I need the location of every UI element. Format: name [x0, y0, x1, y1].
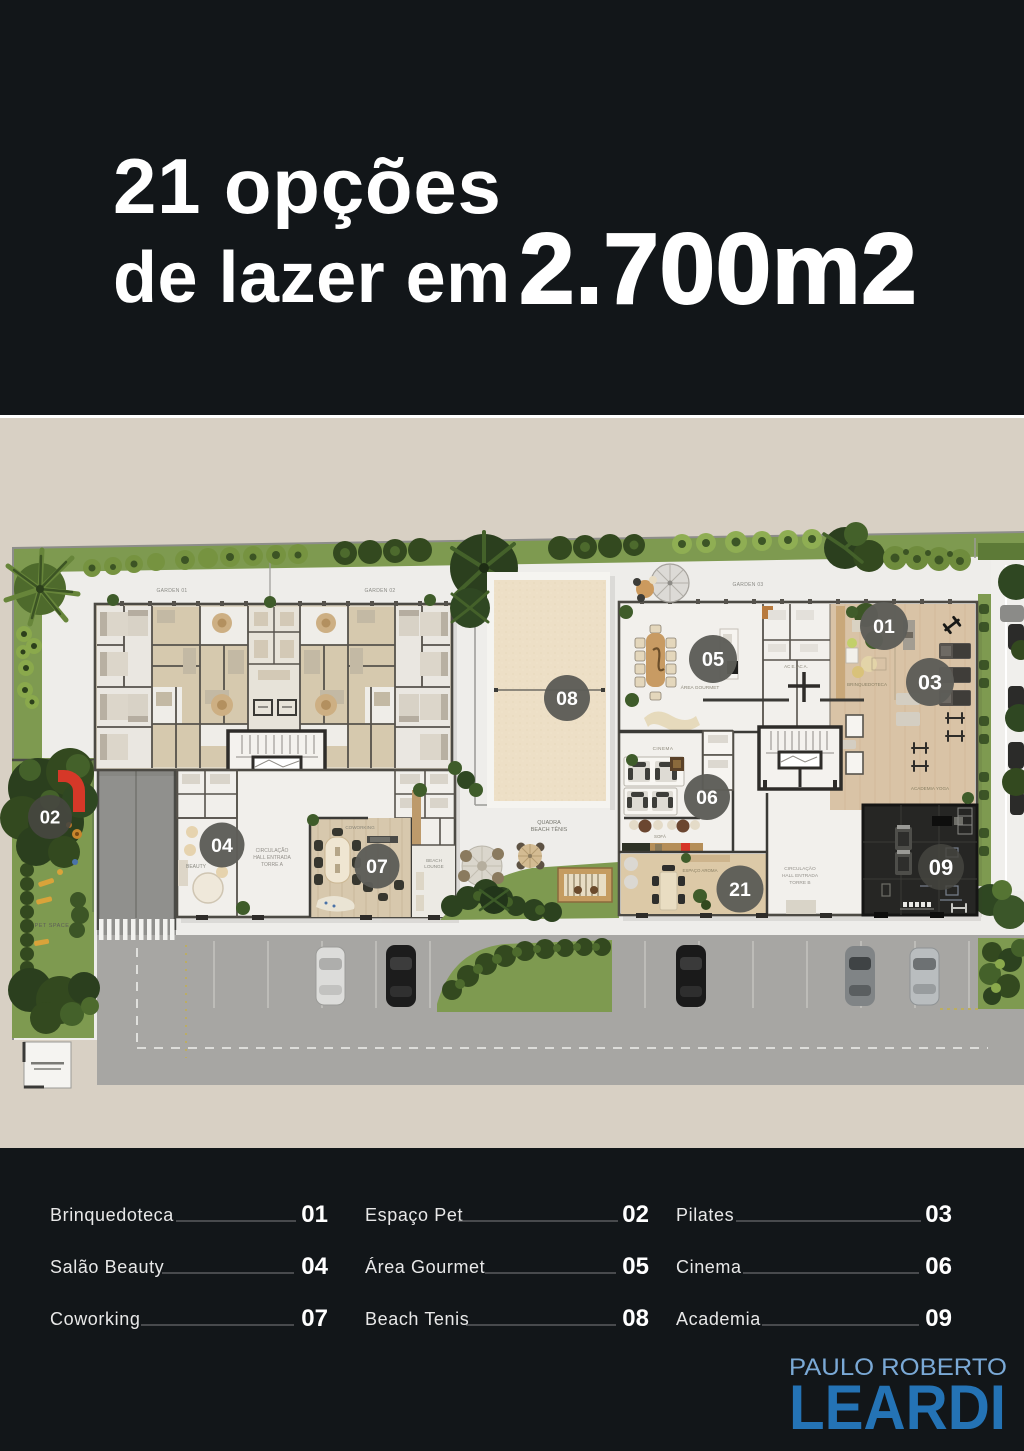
- svg-text:08: 08: [556, 688, 578, 710]
- svg-text:BRINQUEDOTECA: BRINQUEDOTECA: [847, 682, 888, 687]
- svg-text:Cinema: Cinema: [676, 1257, 742, 1277]
- svg-text:Área Gourmet: Área Gourmet: [365, 1257, 485, 1277]
- svg-text:LEARDI: LEARDI: [789, 1373, 1006, 1443]
- svg-text:04: 04: [301, 1253, 328, 1280]
- svg-text:Espaço Pet: Espaço Pet: [365, 1205, 463, 1225]
- svg-text:21 opções: 21 opções: [113, 142, 502, 230]
- svg-text:HALL ENTRADA: HALL ENTRADA: [782, 873, 819, 879]
- svg-text:2.700m2: 2.700m2: [519, 213, 917, 325]
- svg-text:Brinquedoteca: Brinquedoteca: [50, 1205, 174, 1225]
- svg-text:Salão Beauty: Salão Beauty: [50, 1257, 164, 1277]
- svg-text:07: 07: [366, 856, 388, 878]
- svg-text:09: 09: [925, 1305, 952, 1332]
- svg-text:GARDEN 03: GARDEN 03: [732, 582, 763, 588]
- svg-text:05: 05: [622, 1253, 649, 1280]
- svg-text:02: 02: [622, 1201, 649, 1228]
- svg-text:04: 04: [211, 835, 233, 857]
- svg-text:CIRCULAÇÃO: CIRCULAÇÃO: [784, 865, 816, 872]
- svg-text:GARDEN 02: GARDEN 02: [364, 588, 395, 594]
- svg-text:ACADEMIA YOGA: ACADEMIA YOGA: [911, 786, 950, 791]
- svg-text:05: 05: [702, 649, 724, 671]
- svg-text:COWORKING: COWORKING: [345, 825, 375, 830]
- svg-text:09: 09: [929, 855, 953, 880]
- svg-text:01: 01: [301, 1201, 328, 1228]
- svg-text:AC E. AC A.: AC E. AC A.: [784, 664, 808, 669]
- svg-text:Coworking: Coworking: [50, 1309, 140, 1329]
- svg-text:TORRE A: TORRE A: [261, 862, 284, 868]
- svg-text:QUADRA: QUADRA: [537, 820, 561, 826]
- svg-text:08: 08: [622, 1305, 649, 1332]
- svg-text:de lazer em: de lazer em: [113, 238, 511, 318]
- svg-text:CINEMA: CINEMA: [653, 746, 674, 751]
- svg-text:PET SPACE: PET SPACE: [35, 923, 70, 929]
- svg-text:07: 07: [301, 1305, 328, 1332]
- svg-text:BEACH TÊNIS: BEACH TÊNIS: [531, 825, 568, 833]
- svg-text:03: 03: [925, 1201, 952, 1228]
- svg-text:CIRCULAÇÃO: CIRCULAÇÃO: [256, 847, 289, 854]
- svg-text:SOFÁ: SOFÁ: [654, 834, 666, 839]
- svg-text:Pilates: Pilates: [676, 1205, 734, 1225]
- svg-text:03: 03: [918, 671, 942, 695]
- svg-text:HALL ENTRADA: HALL ENTRADA: [253, 855, 291, 861]
- svg-text:Academia: Academia: [676, 1309, 761, 1329]
- svg-text:06: 06: [696, 787, 718, 809]
- svg-text:ESPAÇO AROMA: ESPAÇO AROMA: [682, 868, 717, 873]
- svg-text:TORRE B: TORRE B: [789, 880, 810, 886]
- svg-text:06: 06: [925, 1253, 952, 1280]
- svg-text:GARDEN 01: GARDEN 01: [156, 588, 187, 594]
- svg-text:01: 01: [873, 616, 895, 638]
- svg-text:21: 21: [729, 879, 751, 901]
- svg-text:BEAUTY: BEAUTY: [186, 864, 207, 870]
- svg-text:ÁREA GOURMET: ÁREA GOURMET: [681, 684, 720, 691]
- svg-text:LOUNGE: LOUNGE: [424, 864, 443, 869]
- svg-text:BEACH: BEACH: [426, 858, 442, 863]
- svg-text:Beach Tenis: Beach Tenis: [365, 1309, 469, 1329]
- svg-text:02: 02: [40, 807, 61, 828]
